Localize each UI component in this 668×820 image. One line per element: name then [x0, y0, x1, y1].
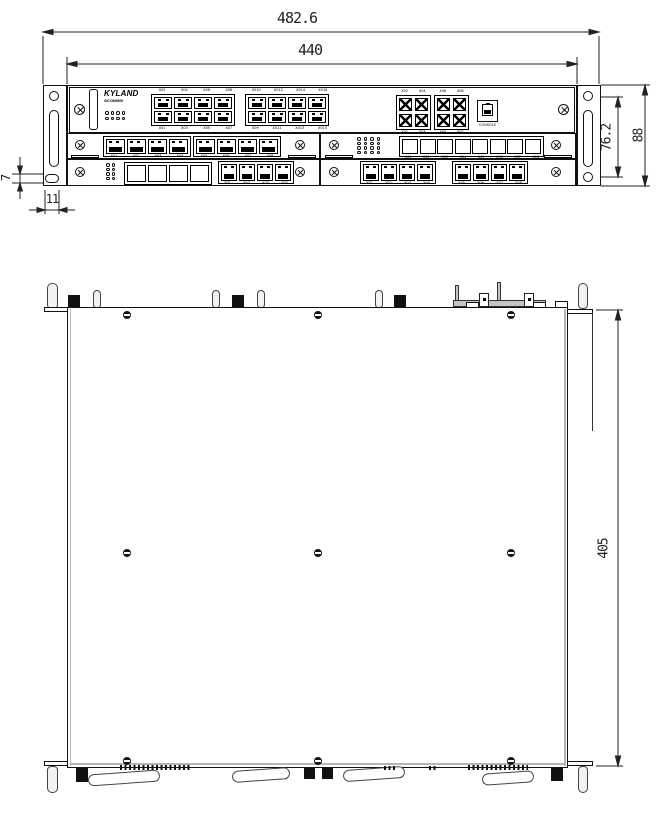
cover-screw — [314, 757, 322, 765]
module-screw — [295, 167, 305, 177]
rj-port — [509, 164, 525, 181]
sfp-block-1 — [396, 95, 431, 130]
chassis-top — [67, 307, 568, 768]
port-label: X09 — [252, 127, 259, 131]
sfp-port — [437, 98, 450, 111]
ear-flange — [567, 309, 593, 314]
cover-screw — [123, 757, 131, 765]
cover-screw — [507, 757, 515, 765]
rj-port — [259, 139, 278, 154]
dim-mounting-width: 440 — [280, 43, 340, 58]
sfp-block-2 — [434, 95, 469, 130]
rj-port — [217, 139, 236, 154]
fastener-knob — [322, 767, 333, 779]
blank-slot-row — [399, 136, 544, 157]
module-screw — [75, 167, 85, 177]
port-label-row: X06X08 — [434, 90, 469, 94]
module-leds — [106, 163, 115, 180]
rj-port — [288, 111, 306, 123]
rj-port — [169, 139, 188, 154]
port-label: X08 — [225, 89, 232, 93]
port-label: X06 — [203, 89, 210, 93]
rj-port — [473, 164, 489, 181]
fastener-knob — [551, 768, 563, 781]
port-label: X04 — [281, 182, 288, 186]
sfp-port — [453, 114, 466, 127]
led-dot — [377, 142, 381, 146]
led-dot — [370, 142, 374, 146]
blank-slot — [420, 139, 436, 154]
led-dot — [357, 142, 361, 146]
module-leds — [357, 137, 380, 154]
rj-port — [238, 139, 257, 154]
port-label: X03 — [262, 182, 269, 186]
port-label: X02 — [243, 182, 250, 186]
led-dot — [364, 137, 368, 141]
rj-port — [127, 139, 146, 154]
blank-slot — [148, 165, 167, 182]
latch-post — [497, 282, 501, 302]
led-dot — [106, 177, 110, 181]
blank-slot — [525, 139, 541, 154]
ear-slot — [583, 110, 593, 167]
console-label: CONSOLE — [471, 124, 504, 128]
module-screw — [551, 167, 561, 177]
led-dot — [116, 117, 120, 121]
rj-port — [399, 164, 415, 181]
fastener-knob — [76, 768, 88, 782]
vent-strip — [384, 766, 396, 770]
rj-port — [248, 97, 266, 109]
fastener-knob — [68, 295, 80, 307]
chassis-tab — [375, 290, 383, 308]
port-label-row: X01X02X03X04 — [360, 182, 436, 186]
ear-hole — [49, 91, 59, 101]
port-label: X016 — [318, 89, 327, 93]
rj-port — [268, 97, 286, 109]
port-label: X011 — [272, 127, 281, 131]
led-dot — [106, 172, 110, 176]
blank-slot — [472, 139, 488, 154]
chassis-tab — [47, 283, 58, 309]
led-dot — [105, 111, 109, 115]
ear-flange — [44, 761, 68, 766]
blank-slot — [127, 165, 146, 182]
rj-port — [194, 111, 212, 123]
port-label: X08 — [515, 182, 522, 186]
port-label-row: X01X02X03X04 — [218, 182, 294, 186]
sfp-port — [399, 114, 412, 127]
ear-hole — [583, 172, 593, 182]
port-label-row: X02X04X06X08 — [151, 89, 240, 93]
blank-slot-row — [124, 162, 212, 185]
led-dot — [112, 168, 116, 172]
blank-slot — [507, 139, 523, 154]
port-label: X06 — [477, 182, 484, 186]
port-label: X07 — [225, 127, 232, 131]
rj-port — [248, 111, 266, 123]
port-label: X08 — [457, 90, 464, 94]
cover-screw — [123, 311, 131, 319]
cover-screw — [123, 549, 131, 557]
port-label: X05 — [203, 127, 210, 131]
rj-port — [257, 164, 273, 181]
panel-screw — [558, 104, 569, 115]
rj-port — [154, 111, 172, 123]
rj45-block-2 — [245, 94, 329, 126]
port-label: X04 — [419, 90, 426, 94]
rj-port — [174, 97, 192, 109]
blank-slot — [190, 165, 209, 182]
led-dot — [122, 111, 126, 115]
blank-slot — [402, 139, 418, 154]
rj-port — [106, 139, 125, 154]
port-label: X01 — [159, 127, 166, 131]
port-label: X04 — [423, 182, 430, 186]
rj-port — [174, 111, 192, 123]
fastener-knob — [304, 767, 315, 779]
faceplate-seam — [288, 155, 316, 158]
status-leds — [105, 111, 125, 120]
dim-ear-tab-width: 11 — [40, 193, 64, 205]
rj-port — [239, 164, 255, 181]
faceplate-seam — [71, 155, 99, 158]
port-label-row: X05X06X07X08 — [452, 182, 528, 186]
led-dot — [112, 177, 116, 181]
led-dot — [364, 142, 368, 146]
vent-strip — [120, 765, 192, 770]
led-dot — [112, 163, 116, 167]
led-dot — [357, 146, 361, 150]
dim-hole-spacing: 76.2 — [601, 115, 614, 161]
sfp-port — [437, 114, 450, 127]
sfp-port — [399, 98, 412, 111]
rj-port — [221, 164, 237, 181]
ear-hole — [583, 91, 593, 101]
ear-tab-hole — [45, 174, 59, 183]
engineering-drawing: 482.6 440 76.2 88 7 11 405 KYLAND SICOM6… — [0, 0, 668, 820]
led-dot — [370, 146, 374, 150]
fastener-knob — [394, 295, 406, 307]
port-label: X012 — [274, 89, 283, 93]
vent-strip — [468, 765, 528, 770]
led-dot — [111, 111, 115, 115]
module-screw — [295, 140, 305, 150]
led-dot — [106, 163, 110, 167]
rj-port — [308, 111, 326, 123]
led-dot — [364, 146, 368, 150]
sfp-port — [415, 114, 428, 127]
led-dot — [370, 151, 374, 155]
ejector-handle — [89, 89, 98, 130]
port-label: X010 — [252, 89, 261, 93]
vent-strip — [429, 766, 437, 770]
dim-depth: 405 — [598, 526, 611, 572]
cover-screw — [314, 311, 322, 319]
rj-port — [194, 97, 212, 109]
fastener-knob — [232, 295, 244, 307]
led-dot — [377, 137, 381, 141]
chassis-tab — [47, 766, 58, 793]
port-label: X01 — [366, 182, 373, 186]
edge-shading — [564, 309, 566, 766]
port-label-row: X010X012X014X016 — [245, 89, 334, 93]
rj-port — [288, 97, 306, 109]
port-label: X015 — [318, 127, 327, 131]
rj-port — [214, 111, 232, 123]
module-screw — [329, 140, 339, 150]
sfp-port — [453, 98, 466, 111]
led-dot — [364, 151, 368, 155]
rj-port — [214, 97, 232, 109]
led-dot — [112, 172, 116, 176]
port-label: X04 — [181, 89, 188, 93]
led-dot — [357, 137, 361, 141]
blank-slot — [490, 139, 506, 154]
port-label: X03 — [404, 182, 411, 186]
port-label: X02 — [385, 182, 392, 186]
cover-screw — [314, 549, 322, 557]
port-label: X01 — [224, 182, 231, 186]
led-dot — [357, 151, 361, 155]
led-dot — [377, 146, 381, 150]
rj-port — [363, 164, 379, 181]
chassis-tab — [93, 290, 101, 308]
sfp-port — [415, 98, 428, 111]
led-dot — [106, 168, 110, 172]
blank-slot — [169, 165, 188, 182]
port-label: X07 — [496, 182, 503, 186]
rj-port — [417, 164, 433, 181]
ear-slot — [49, 110, 59, 167]
panel-screw — [74, 104, 85, 115]
chassis-tab — [212, 290, 220, 308]
cover-screw — [507, 311, 515, 319]
rj-port — [308, 97, 326, 109]
rj-port — [455, 164, 471, 181]
chassis-tab — [257, 290, 265, 308]
chassis-tab — [578, 766, 588, 793]
rj-port — [196, 139, 215, 154]
console-port — [477, 100, 498, 122]
port-label: X02 — [401, 90, 408, 94]
module-slot-3-right — [320, 159, 576, 186]
rj-port — [154, 97, 172, 109]
rj-port — [381, 164, 397, 181]
port-label: X014 — [296, 89, 305, 93]
port-label-row: X02X04 — [396, 90, 431, 94]
rj-port — [275, 164, 291, 181]
rj-port — [491, 164, 507, 181]
ear-flange — [44, 307, 68, 312]
port-label: X05 — [458, 182, 465, 186]
module-screw — [329, 167, 339, 177]
model-text: SICOM6800 — [104, 100, 123, 104]
dim-overall-width: 482.6 — [257, 11, 337, 26]
edge-shading — [70, 309, 72, 766]
port-label: X02 — [159, 89, 166, 93]
latch-clip — [479, 293, 489, 307]
led-dot — [105, 117, 109, 121]
port-label-row: X01X03X05X07 — [151, 127, 240, 131]
led-dot — [122, 117, 126, 121]
blank-slot — [437, 139, 453, 154]
cover-screw — [507, 549, 515, 557]
faceplate-seam — [325, 155, 353, 158]
port-label: X013 — [295, 127, 304, 131]
chassis-tab — [578, 283, 588, 309]
faceplate-seam — [544, 155, 572, 158]
ear-plate-edge — [592, 313, 594, 431]
led-dot — [377, 151, 381, 155]
rj-port — [268, 111, 286, 123]
port-label-row: X09X011X013X015 — [245, 127, 334, 131]
led-dot — [116, 111, 120, 115]
led-dot — [111, 117, 115, 121]
led-dot — [370, 137, 374, 141]
port-label: X03 — [181, 127, 188, 131]
rj-port — [148, 139, 167, 154]
blank-slot — [455, 139, 471, 154]
dim-overall-height: 88 — [633, 119, 646, 153]
brand-logo: KYLAND — [104, 90, 139, 98]
port-label: X06 — [439, 90, 446, 94]
rj45-block-1 — [151, 94, 235, 126]
dim-ear-offset: 7 — [0, 169, 12, 187]
module-screw — [75, 140, 85, 150]
module-screw — [551, 140, 561, 150]
